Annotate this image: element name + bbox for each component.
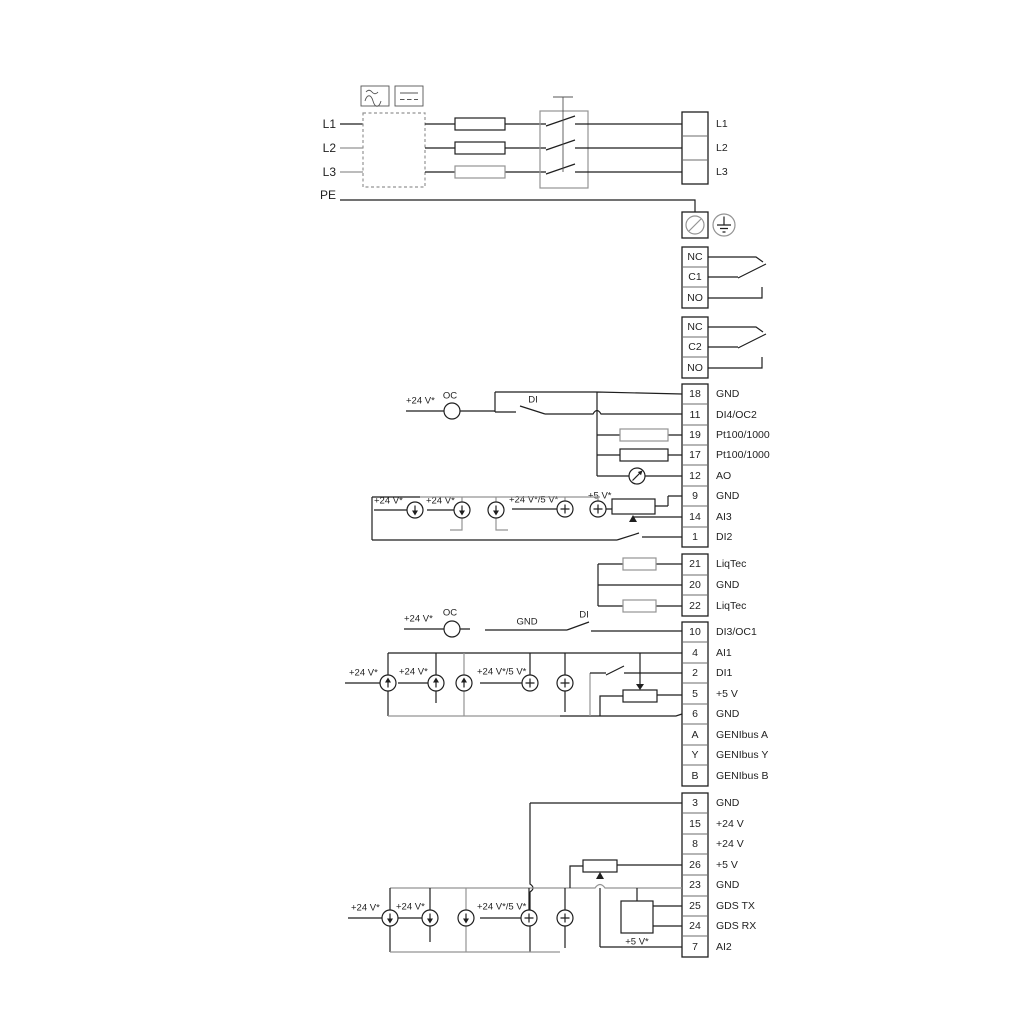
current-source-down-icon xyxy=(488,502,504,518)
voltage-source-icon xyxy=(521,910,537,926)
g3-di-label: DI xyxy=(579,610,589,621)
g3-oc-label: OC xyxy=(443,608,457,619)
g4-bottom-rail xyxy=(560,714,682,716)
io4-label-gds-rx: GDS RX xyxy=(716,920,756,932)
io1-label-gnd2: GND xyxy=(716,490,740,502)
io3-num-b: B xyxy=(691,770,698,782)
potentiometer-ai2 xyxy=(583,860,617,872)
g5-24v-label-1: +24 V* xyxy=(351,903,380,914)
io1-label-pt2: Pt100/1000 xyxy=(716,449,770,461)
g2-245v-label: +24 V*/5 V* xyxy=(509,495,559,506)
io3-num-a: A xyxy=(691,729,698,741)
g4-24v-label-1: +24 V* xyxy=(349,668,378,679)
relay-1-block: NC C1 NO xyxy=(682,247,766,308)
power-out-label-l2: L2 xyxy=(716,142,728,154)
io3-num-y: Y xyxy=(691,749,698,761)
mains-label-l1: L1 xyxy=(323,117,337,131)
current-source-down-icon xyxy=(382,910,398,926)
io1-num-17: 17 xyxy=(689,449,701,461)
io3-label-di3: DI3/OC1 xyxy=(716,626,757,638)
mains-label-pe: PE xyxy=(320,188,336,202)
io4-label-gnd1: GND xyxy=(716,797,740,809)
resistor-pt100-17 xyxy=(620,449,668,461)
filter-dashed-box xyxy=(363,113,425,187)
io4-label-ai2: AI2 xyxy=(716,941,732,953)
g4-245v-label: +24 V*/5 V* xyxy=(477,667,527,678)
io-block-3: 10 DI3/OC1 4 AI1 2 DI1 5 +5 V 6 GND A GE… xyxy=(345,608,769,787)
current-source-down-icon xyxy=(407,502,423,518)
mains-label-l2: L2 xyxy=(323,141,337,155)
mains-label-l3: L3 xyxy=(323,165,337,179)
gnd3-wire xyxy=(530,803,682,952)
io4-num-8: 8 xyxy=(692,838,698,850)
io-block-1: 18 GND 11 DI4/OC2 19 Pt100/1000 17 Pt100… xyxy=(372,384,770,547)
io4-num-3: 3 xyxy=(692,797,698,809)
io3-num-10: 10 xyxy=(689,626,701,638)
io1-num-19: 19 xyxy=(689,429,701,441)
relay2-contact xyxy=(708,327,766,368)
io2-label-liqtec1: LiqTec xyxy=(716,558,746,570)
wiring-diagram-page: L1 L2 L3 PE xyxy=(0,0,1024,1024)
relay1-nc: NC xyxy=(687,251,703,263)
current-source-up-icon xyxy=(428,675,444,691)
io2-num-22: 22 xyxy=(689,600,701,612)
io4-label-24v2: +24 V xyxy=(716,838,744,850)
fuse-l2 xyxy=(455,142,505,154)
ground-terminals xyxy=(682,212,735,238)
earth-symbol-icon xyxy=(713,214,735,236)
io1-num-1: 1 xyxy=(692,531,698,543)
io1-label-pt1: Pt100/1000 xyxy=(716,429,770,441)
io2-num-20: 20 xyxy=(689,579,701,591)
g3-gnd-label: GND xyxy=(516,617,537,628)
fuse-l3 xyxy=(455,166,505,178)
wire-pe xyxy=(340,200,695,212)
io1-label-di4: DI4/OC2 xyxy=(716,409,757,421)
switch-blades xyxy=(546,116,575,174)
wiper-arrow-up xyxy=(596,872,604,879)
io4-label-24v1: +24 V xyxy=(716,818,744,830)
io1-num-11: 11 xyxy=(690,409,701,421)
io3-label-5v: +5 V xyxy=(716,688,738,700)
voltage-source-icon xyxy=(590,501,606,517)
io1-label-ai3: AI3 xyxy=(716,511,732,523)
g1-oc-label: OC xyxy=(443,391,457,402)
relay2-no: NO xyxy=(687,362,703,374)
io4-label-gds-tx: GDS TX xyxy=(716,900,755,912)
open-collector-icon xyxy=(444,621,460,637)
voltage-source-icon xyxy=(557,501,573,517)
g1-di-label: DI xyxy=(528,395,538,406)
io1-num-9: 9 xyxy=(692,490,698,502)
io4-num-25: 25 xyxy=(689,900,701,912)
power-out-label-l1: L1 xyxy=(716,118,728,130)
g5-24v-label-2: +24 V* xyxy=(396,902,425,913)
voltage-source-icon xyxy=(557,675,573,691)
current-source-up-icon xyxy=(456,675,472,691)
io2-label-liqtec2: LiqTec xyxy=(716,600,746,612)
current-source-up-icon xyxy=(380,675,396,691)
resistor-pt100-19 xyxy=(620,429,668,441)
analog-output-meter-icon xyxy=(629,468,645,484)
io4-label-gnd2: GND xyxy=(716,879,740,891)
switch-linkage xyxy=(553,97,573,172)
wire-l2-l3-in xyxy=(340,148,363,172)
io3-label-gnd: GND xyxy=(716,708,740,720)
io4-label-5v: +5 V xyxy=(716,859,738,871)
di1-switch-wire xyxy=(590,666,682,675)
g5-245v-label: +24 V*/5 V* xyxy=(477,902,527,913)
liqtec-sensor-21 xyxy=(623,558,656,570)
io1-label-di2: DI2 xyxy=(716,531,733,543)
ac-symbol-box xyxy=(361,86,389,106)
io4-num-7: 7 xyxy=(692,941,698,953)
relay2-c2: C2 xyxy=(688,341,702,353)
wiring-diagram: L1 L2 L3 PE xyxy=(0,0,1024,1024)
dc-symbol-box xyxy=(395,86,423,106)
dc-line-icon xyxy=(400,93,418,100)
g3-24v-label: +24 V* xyxy=(404,614,433,625)
potentiometer-ai3 xyxy=(612,499,655,514)
current-source-down-icon xyxy=(454,502,470,518)
fuse-l1 xyxy=(455,118,505,130)
relay1-no: NO xyxy=(687,292,703,304)
io3-num-4: 4 xyxy=(692,647,698,659)
emc-filter-box xyxy=(361,86,425,187)
pot-wiper-arrow xyxy=(629,515,637,522)
g1-24v-label: +24 V* xyxy=(406,396,435,407)
voltage-source-icon xyxy=(557,910,573,926)
potentiometer-ai1 xyxy=(623,690,657,702)
io4-num-24: 24 xyxy=(689,920,701,932)
g2-5v-label: +5 V* xyxy=(588,491,612,502)
wire-switch-to-terminals xyxy=(575,124,682,172)
io3-label-genibus-b: GENIbus B xyxy=(716,770,769,782)
current-source-down-icon xyxy=(422,910,438,926)
voltage-source-icon xyxy=(522,675,538,691)
io1-num-18: 18 xyxy=(689,388,701,400)
io3-label-genibus-y: GENIbus Y xyxy=(716,749,768,761)
power-out-label-l3: L3 xyxy=(716,166,728,178)
current-source-down-icon xyxy=(458,910,474,926)
io-block-2: 21 LiqTec 20 GND 22 LiqTec xyxy=(598,554,746,616)
io4-num-23: 23 xyxy=(689,879,701,891)
io2-num-21: 21 xyxy=(689,558,701,570)
io-block-4: 3 GND 15 +24 V 8 +24 V 26 +5 V 23 GND 25… xyxy=(348,793,756,957)
io1-label-gnd: GND xyxy=(716,388,740,400)
io2-label-gnd: GND xyxy=(716,579,740,591)
io3-num-2: 2 xyxy=(692,667,698,679)
liqtec-sensor-22 xyxy=(623,600,656,612)
wiper-arrow-down xyxy=(636,684,644,690)
open-collector-icon xyxy=(444,403,460,419)
g4-24v-label-2: +24 V* xyxy=(399,667,428,678)
io3-num-6: 6 xyxy=(692,708,698,720)
io4-num-26: 26 xyxy=(689,859,701,871)
io1-label-ao: AO xyxy=(716,470,731,482)
gds-module-box xyxy=(621,901,653,933)
relay2-nc: NC xyxy=(687,321,703,333)
io1-num-12: 12 xyxy=(689,470,701,482)
io1-num-14: 14 xyxy=(689,511,701,523)
ac-wave-icon xyxy=(365,90,381,106)
di2-switch-wire xyxy=(372,533,682,540)
io3-label-ai1: AI1 xyxy=(716,647,732,659)
io4-num-15: 15 xyxy=(689,818,701,830)
g5-verticals xyxy=(390,888,565,952)
io3-label-di1: DI1 xyxy=(716,667,733,679)
mains-section: L1 L2 L3 PE xyxy=(320,86,695,212)
io3-num-5: 5 xyxy=(692,688,698,700)
gnd23-rail xyxy=(390,885,682,889)
relay-2-block: NC C2 NO xyxy=(682,317,766,378)
relay1-contact xyxy=(708,257,766,298)
g5-5v-label: +5 V* xyxy=(625,937,649,948)
power-terminal-block: L1 L2 L3 xyxy=(682,112,728,184)
main-switch xyxy=(540,97,588,188)
relay1-c1: C1 xyxy=(688,271,702,283)
fuses xyxy=(455,118,505,178)
power-block-outline xyxy=(682,112,708,184)
io3-label-genibus-a: GENIbus A xyxy=(716,729,768,741)
g1-di-switch-wire xyxy=(495,406,682,414)
